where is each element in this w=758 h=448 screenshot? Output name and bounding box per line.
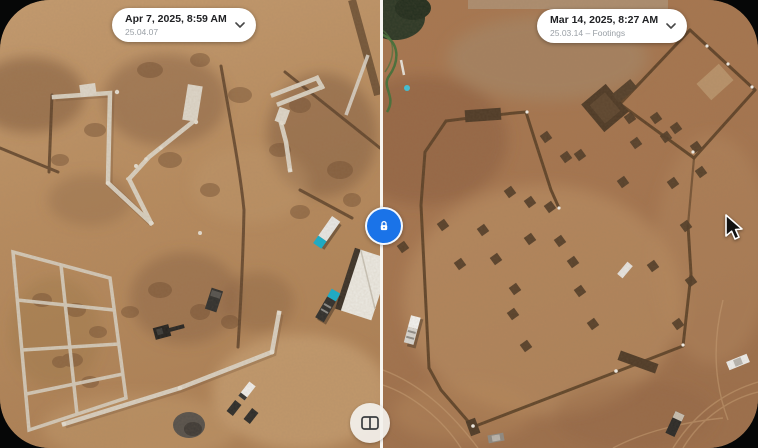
lock-button[interactable]	[365, 207, 403, 245]
screenshot-stage: Apr 7, 2025, 8:59 AM 25.04.07 Mar 14, 20…	[0, 0, 758, 448]
app-window: Apr 7, 2025, 8:59 AM 25.04.07 Mar 14, 20…	[0, 0, 758, 448]
compare-panel-left[interactable]	[0, 0, 380, 448]
left-version-label: 25.04.07	[125, 27, 227, 38]
split-view-icon	[361, 416, 379, 430]
aerial-image-right	[383, 0, 758, 448]
compare-panel-right[interactable]	[383, 0, 758, 448]
left-date-label: Apr 7, 2025, 8:59 AM	[125, 13, 227, 27]
chevron-down-icon	[235, 22, 245, 28]
chevron-down-icon	[666, 23, 676, 29]
right-date-selector[interactable]: Mar 14, 2025, 8:27 AM 25.03.14 – Footing…	[537, 9, 687, 43]
aerial-image-left	[0, 0, 380, 448]
right-date-label: Mar 14, 2025, 8:27 AM	[550, 14, 658, 28]
left-date-selector[interactable]: Apr 7, 2025, 8:59 AM 25.04.07	[112, 8, 256, 42]
right-version-label: 25.03.14 – Footings	[550, 28, 658, 39]
split-view-toggle-button[interactable]	[350, 403, 390, 443]
lock-icon	[377, 219, 391, 233]
